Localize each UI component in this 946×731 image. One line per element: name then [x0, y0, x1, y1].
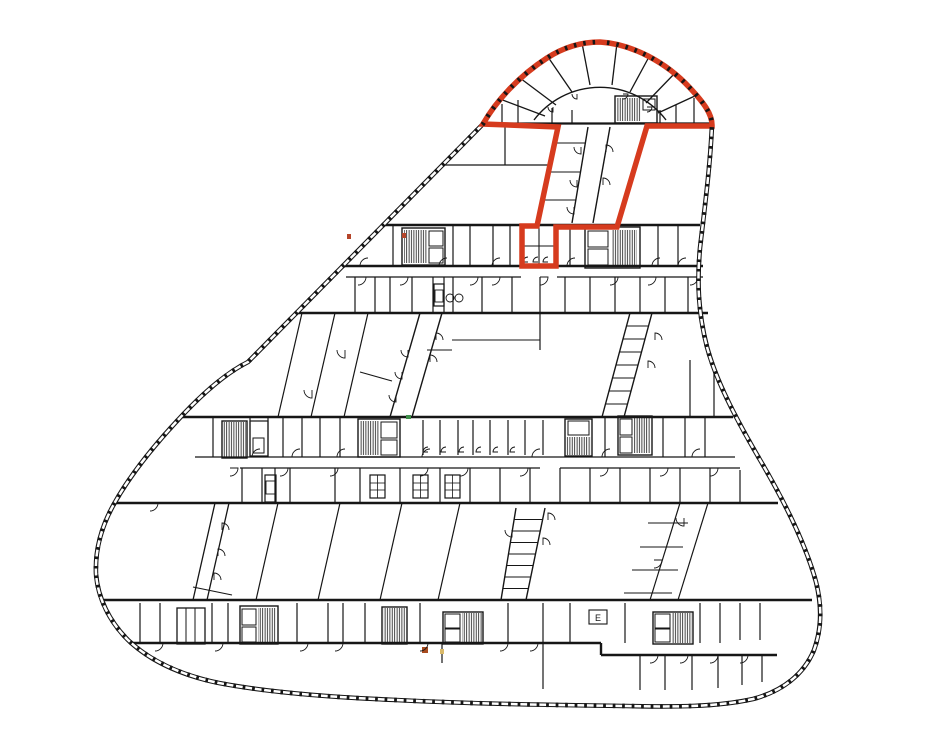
- door-arc: [510, 447, 515, 452]
- stair-hatch: [672, 613, 692, 643]
- door-arc: [358, 277, 366, 285]
- door-arc: [304, 390, 312, 398]
- door-arc: [572, 94, 577, 99]
- core-rect: [445, 614, 460, 628]
- door-arc: [292, 449, 300, 457]
- door-arc: [570, 180, 577, 187]
- door-arc: [330, 468, 338, 476]
- stair-hatch: [404, 230, 427, 263]
- door-arc: [492, 277, 500, 285]
- marker-chip: [440, 649, 444, 654]
- door-arc: [430, 355, 437, 362]
- core-rect: [620, 419, 632, 435]
- wall-line: [646, 72, 676, 103]
- door-arc: [337, 449, 345, 457]
- door-arc: [548, 513, 555, 520]
- wall-line: [500, 99, 545, 116]
- door-arc: [567, 207, 574, 214]
- core-rect: [381, 440, 397, 455]
- door-arc: [543, 257, 548, 262]
- door-arc: [533, 257, 538, 262]
- marker-chip: [402, 233, 406, 238]
- core-rect: [655, 629, 670, 642]
- door-arc: [280, 468, 288, 476]
- core-rect: [177, 608, 205, 644]
- door-arc: [476, 447, 481, 452]
- core-rect: [242, 609, 256, 625]
- door-arc: [230, 468, 238, 476]
- stair-hatch: [383, 608, 406, 643]
- marker-chip: [347, 234, 351, 239]
- door-arc: [214, 573, 221, 580]
- wall-line: [412, 313, 442, 417]
- core-rect: [568, 421, 589, 435]
- stair-hatch: [612, 230, 637, 265]
- wall-line: [380, 503, 402, 600]
- core-rect: [242, 627, 256, 642]
- door-arc: [520, 468, 528, 476]
- wall-line: [318, 503, 340, 600]
- wall-line: [678, 503, 708, 600]
- wall-line: [360, 372, 392, 381]
- door-arc: [218, 549, 225, 556]
- wall-line: [548, 57, 572, 92]
- core-rect: [445, 629, 460, 642]
- door-arc: [460, 468, 468, 476]
- door-arc: [603, 178, 610, 185]
- core-rect: [434, 284, 444, 306]
- stair-hatch: [258, 608, 276, 642]
- door-arc: [400, 277, 408, 285]
- marker-chip: [406, 415, 411, 419]
- door-arc: [436, 333, 443, 340]
- door-arc: [648, 361, 655, 368]
- wall-line: [438, 503, 460, 600]
- door-arc: [610, 277, 618, 285]
- door-arc: [655, 333, 662, 340]
- core-rect: [620, 437, 632, 453]
- door-arc: [532, 449, 540, 457]
- door-arc: [710, 468, 718, 476]
- wall-line: [311, 313, 335, 417]
- core-rect: [265, 475, 276, 502]
- floor-plan-svg: E: [0, 0, 946, 731]
- core-rect: [266, 481, 275, 494]
- door-arc: [600, 468, 608, 476]
- door-arc: [574, 147, 581, 154]
- wall-line: [658, 95, 697, 113]
- door-arc: [602, 449, 610, 457]
- door-arc: [692, 449, 700, 457]
- door-arc: [543, 538, 550, 545]
- core-rect: [588, 231, 608, 247]
- core-rect: [655, 614, 670, 628]
- stair-hatch: [223, 422, 246, 457]
- wall-line: [193, 503, 215, 600]
- door-arc: [540, 277, 548, 285]
- door-arc: [660, 468, 668, 476]
- sink-symbol: [455, 294, 463, 302]
- door-arc: [493, 447, 498, 452]
- door-arc: [459, 447, 464, 452]
- stair-hatch: [566, 437, 591, 455]
- facade-glazing-line: [96, 42, 820, 706]
- wall-line: [193, 587, 232, 595]
- door-arc: [441, 447, 446, 452]
- stair-hatch: [617, 98, 641, 121]
- door-arc: [470, 277, 478, 285]
- core-rect: [588, 249, 608, 265]
- core-rect: [435, 290, 443, 302]
- wall-line: [582, 43, 590, 85]
- door-arc: [648, 277, 656, 285]
- wall-line: [520, 78, 556, 105]
- wall-line: [344, 313, 368, 417]
- door-arc: [676, 518, 684, 526]
- core-rect: [429, 231, 443, 246]
- stair-hatch: [634, 418, 650, 453]
- door-arc: [337, 350, 345, 358]
- wall-line: [630, 55, 650, 92]
- wall-line: [593, 127, 610, 223]
- floor-plan-canvas: E: [0, 0, 946, 731]
- room-label: E: [595, 613, 601, 623]
- wall-line: [650, 503, 680, 600]
- core-rect: [381, 422, 397, 438]
- wall-line: [256, 503, 278, 600]
- stair-hatch: [360, 421, 379, 455]
- stair-hatch: [462, 613, 482, 643]
- wall-line: [612, 43, 617, 85]
